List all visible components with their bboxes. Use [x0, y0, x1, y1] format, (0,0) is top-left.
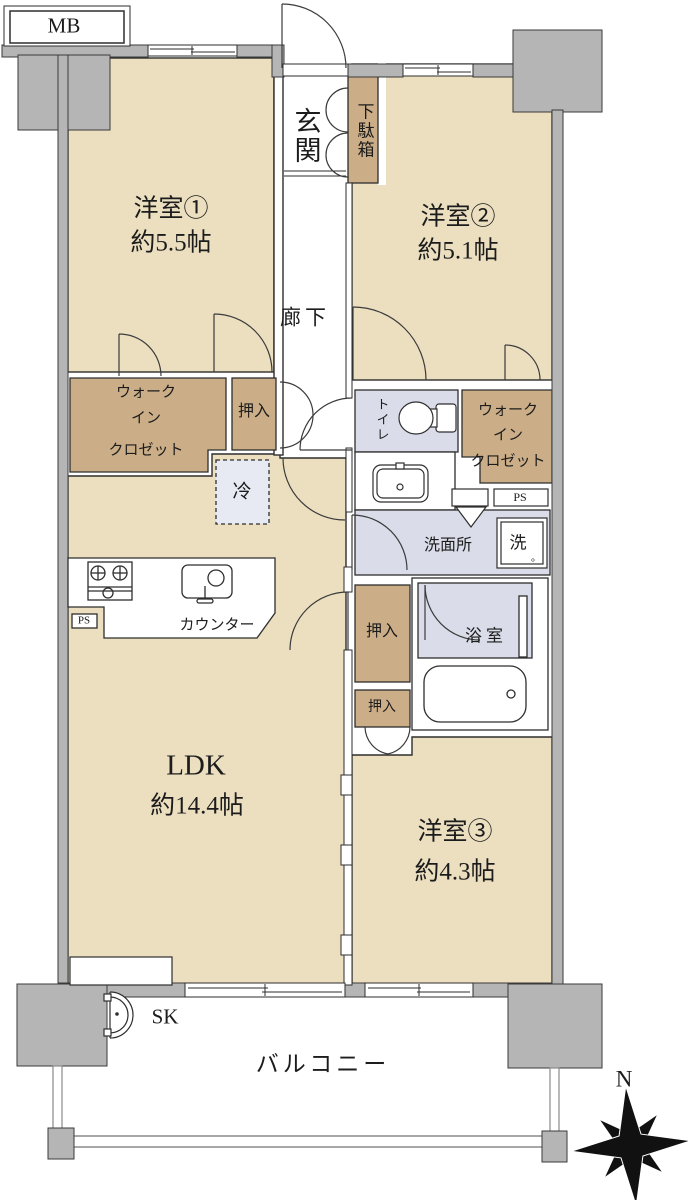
oshiire1-bifold-arc — [280, 382, 313, 415]
entrance-label: 玄関 — [292, 107, 319, 165]
bath-counter — [519, 596, 527, 657]
toilet-label: トイレ — [376, 398, 389, 443]
corner-block-bottom-right — [508, 984, 602, 1068]
slop-sink-label: SK — [152, 1007, 179, 1028]
wic2-label-line1: ウォーク — [478, 404, 538, 419]
compass-north-label: N — [616, 1068, 633, 1091]
wic1-label-line1: ウォーク — [116, 386, 176, 401]
wic2-label-line2: イン — [493, 429, 523, 444]
oshiire1-bifold-arc — [280, 415, 313, 448]
window-room2 — [403, 64, 473, 76]
room2-name: 洋室② — [420, 205, 495, 230]
stove-icon — [88, 562, 132, 600]
duct-box — [452, 489, 488, 506]
window-room3-balcony — [365, 983, 473, 997]
floor-plan-drawing — [0, 0, 688, 1200]
shoe-cabinet-door-arc — [326, 88, 348, 132]
vanity-sink-icon — [373, 463, 428, 502]
corner-block-bottom-left — [17, 984, 107, 1066]
counter-label: カウンター — [179, 619, 254, 634]
oshiire3-bifold-arc — [388, 727, 410, 754]
meter-box-label: MB — [48, 16, 81, 37]
wic2-label-line3: クロゼット — [470, 455, 545, 470]
window-ldk-balcony — [185, 983, 345, 997]
corner-block-top-right — [513, 30, 602, 112]
washer-label-maru: 。 — [531, 554, 541, 564]
bathtub-icon — [424, 666, 526, 722]
bathroom — [418, 583, 532, 658]
ldk-size: 約14.4帖 — [150, 794, 244, 819]
corridor-label: 廊下 — [280, 308, 330, 329]
room3-name: 洋室③ — [417, 820, 492, 845]
kitchen-sink-icon — [182, 565, 232, 603]
oshiire3-label: 押入 — [368, 701, 396, 715]
room-ldk — [68, 454, 346, 985]
floor-plan: MB 洋室① 約5.5帖 玄関 下駄箱 洋室② 約5.1帖 廊下 ウォーク イン… — [0, 0, 688, 1200]
washroom-label: 洗面所 — [424, 538, 472, 554]
oshiire1-label: 押入 — [238, 404, 270, 420]
shoe-cabinet-label: 下駄箱 — [356, 103, 373, 160]
oshiire3-bifold-arc — [365, 727, 388, 754]
shoe-cabinet-door-arc — [326, 133, 348, 177]
ldk-low-cabinet — [70, 957, 172, 985]
room1-size: 約5.5帖 — [130, 231, 211, 256]
ps-right-label: PS — [513, 491, 526, 503]
window-room1 — [148, 45, 237, 56]
room3-size: 約4.3帖 — [414, 860, 495, 885]
balcony-railing — [59, 1136, 554, 1147]
toilet-door-arc — [300, 398, 352, 450]
toilet-icon — [399, 402, 456, 434]
wic1-label-line3: クロゼット — [108, 444, 183, 459]
wic1-label-line2: イン — [131, 412, 161, 427]
refrigerator-label: 冷 — [232, 483, 251, 502]
room1-name: 洋室① — [133, 197, 208, 222]
slop-sink-icon — [104, 992, 133, 1038]
bathroom-label: 浴室 — [465, 628, 507, 645]
ldk-name: LDK — [166, 752, 226, 781]
balcony-structure — [48, 1066, 567, 1162]
entrance-door-arc — [282, 4, 346, 68]
room2-size: 約5.1帖 — [417, 239, 498, 264]
balcony-label: バルコニー — [256, 1053, 391, 1076]
compass-rose-icon — [566, 1081, 688, 1200]
washer-label: 洗 — [510, 535, 527, 552]
oshiire2-label: 押入 — [366, 624, 398, 640]
ps-kitchen-label: PS — [78, 616, 90, 627]
